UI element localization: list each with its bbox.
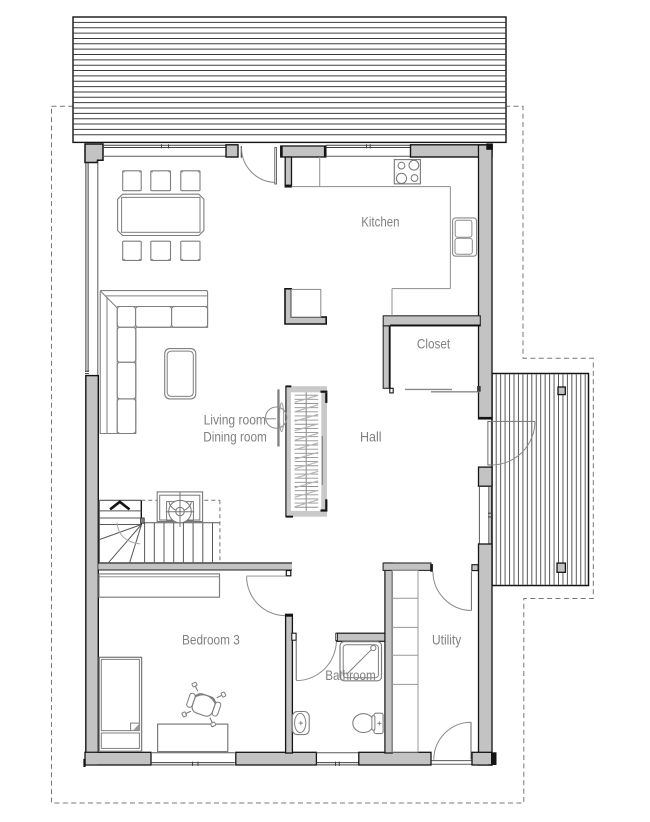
svg-text:Closet: Closet: [417, 336, 450, 351]
svg-text:Utility: Utility: [432, 632, 461, 647]
svg-text:Bedroom 3: Bedroom 3: [182, 632, 240, 647]
svg-text:Hall: Hall: [360, 430, 382, 445]
svg-text:Dining room: Dining room: [203, 429, 267, 444]
svg-text:Bathroom: Bathroom: [325, 668, 376, 683]
svg-text:Living room: Living room: [204, 412, 266, 427]
svg-text:Kitchen: Kitchen: [361, 215, 399, 230]
